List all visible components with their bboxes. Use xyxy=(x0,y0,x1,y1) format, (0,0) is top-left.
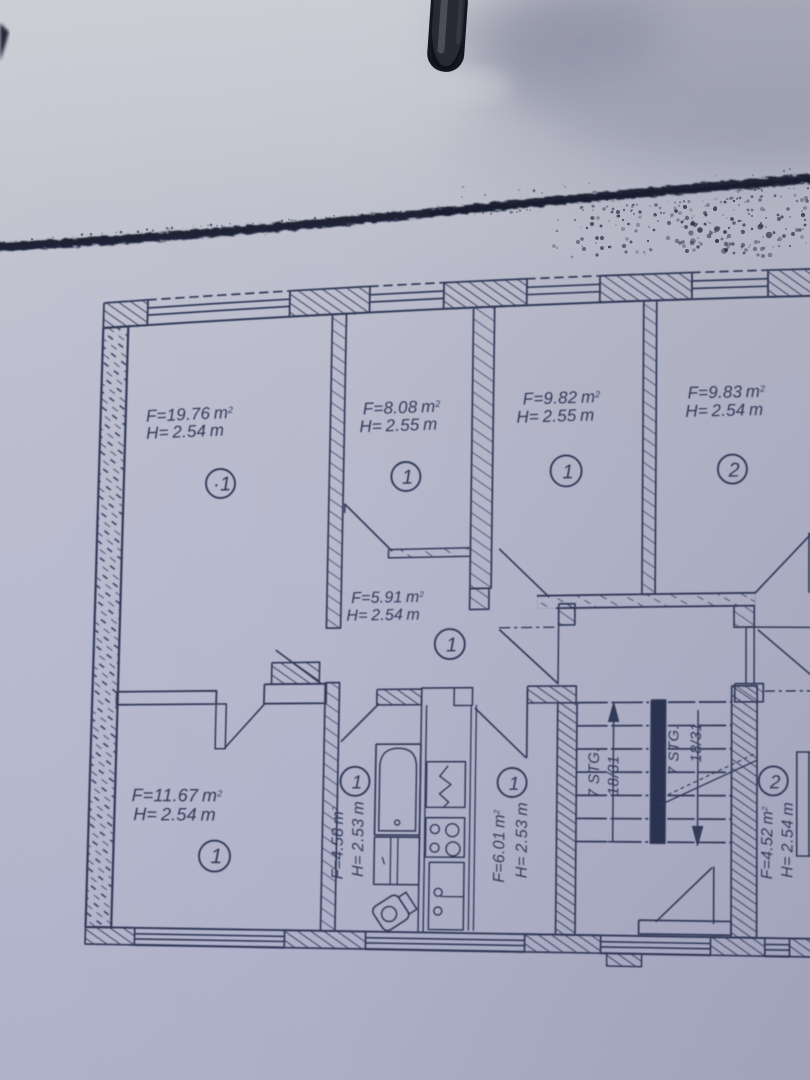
svg-text:H= 2.53 m: H= 2.53 m xyxy=(350,801,368,877)
svg-text:F=4.58 m2: F=4.58 m2 xyxy=(329,806,347,880)
svg-text:2: 2 xyxy=(769,772,781,793)
svg-text:1: 1 xyxy=(562,461,574,483)
svg-text:H= 2.54 m: H= 2.54 m xyxy=(346,607,420,625)
svg-text:F=4.52 m2: F=4.52 m2 xyxy=(759,806,777,880)
svg-text:F=5.91 m2: F=5.91 m2 xyxy=(351,589,425,607)
svg-text:1: 1 xyxy=(402,467,414,489)
svg-text:H= 2.53 m: H= 2.53 m xyxy=(514,802,532,878)
svg-text:H= 2.55 m: H= 2.55 m xyxy=(359,415,438,437)
svg-text:1: 1 xyxy=(352,772,363,793)
svg-text:1: 1 xyxy=(509,774,520,795)
svg-text:2: 2 xyxy=(727,459,740,481)
svg-text:H= 2.54 m: H= 2.54 m xyxy=(146,421,225,443)
svg-text:7 STG.: 7 STG. xyxy=(666,725,683,776)
svg-text:·1: ·1 xyxy=(213,473,232,496)
svg-text:18/31: 18/31 xyxy=(688,722,705,762)
svg-text:H= 2.55 m: H= 2.55 m xyxy=(516,405,595,426)
svg-text:H= 2.54 m: H= 2.54 m xyxy=(133,804,216,824)
svg-text:F=11.67 m2: F=11.67 m2 xyxy=(132,785,223,805)
svg-text:1: 1 xyxy=(446,634,458,656)
svg-text:7 STG.: 7 STG. xyxy=(586,747,603,798)
svg-text:F=6.01 m2: F=6.01 m2 xyxy=(491,809,509,883)
svg-text:H= 2.54 m: H= 2.54 m xyxy=(779,802,797,878)
svg-text:18/31: 18/31 xyxy=(605,755,622,795)
svg-text:1: 1 xyxy=(210,845,222,868)
svg-text:H= 2.54 m: H= 2.54 m xyxy=(685,400,764,421)
